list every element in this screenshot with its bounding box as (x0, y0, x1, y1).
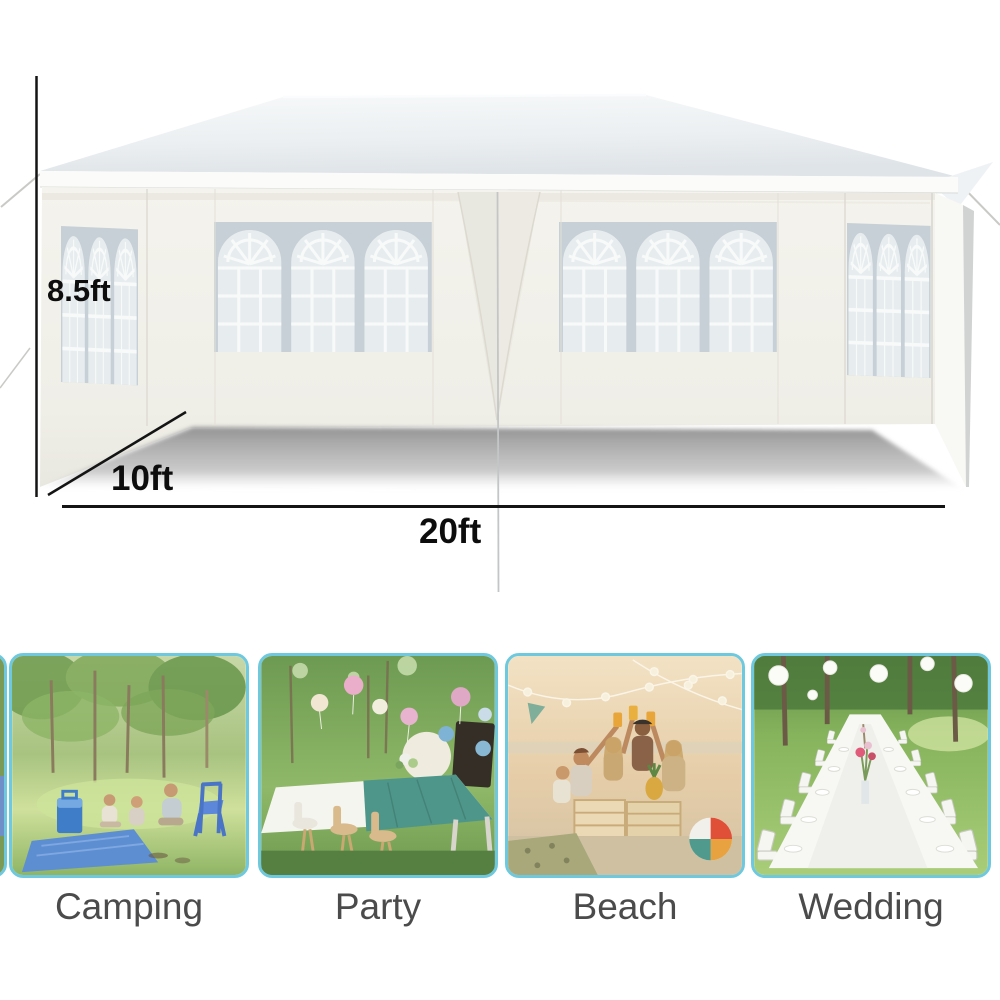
height-label: 8.5ft (47, 273, 111, 308)
use-case-party: Party (258, 653, 498, 927)
tent-diagram: 8.5ft 10ft 20ft (0, 0, 1000, 630)
caption-beach: Beach (505, 887, 745, 927)
photo-card (0, 653, 7, 878)
width-label: 20ft (419, 512, 482, 551)
beach-photo (505, 653, 745, 878)
caption-wedding: Wedding (751, 887, 991, 927)
right-outer-wedge (935, 193, 966, 487)
floor-shadow (40, 427, 963, 490)
center-pole-rope (498, 192, 499, 592)
use-case-camping: Camping (9, 653, 249, 927)
crates (574, 800, 680, 837)
beach-ball (689, 818, 732, 861)
use-case-wedding: Wedding (751, 653, 991, 927)
caption-camping: Camping (9, 887, 249, 927)
window-group-front-left (214, 222, 432, 352)
tent-roof (40, 95, 958, 177)
product-image-page: 8.5ft 10ft 20ft (0, 0, 1000, 1000)
depth-label: 10ft (111, 459, 174, 498)
window-group-right-side (847, 223, 931, 378)
grass (261, 851, 495, 875)
use-case-beach: Beach (505, 653, 745, 927)
sliver-photo (0, 656, 4, 875)
window-group-front-right (559, 222, 777, 352)
cropped-photo-sliver (0, 653, 7, 878)
camping-photo (9, 653, 249, 878)
caption-party: Party (258, 887, 498, 927)
party-photo (258, 653, 498, 878)
wedding-photo (751, 653, 991, 878)
